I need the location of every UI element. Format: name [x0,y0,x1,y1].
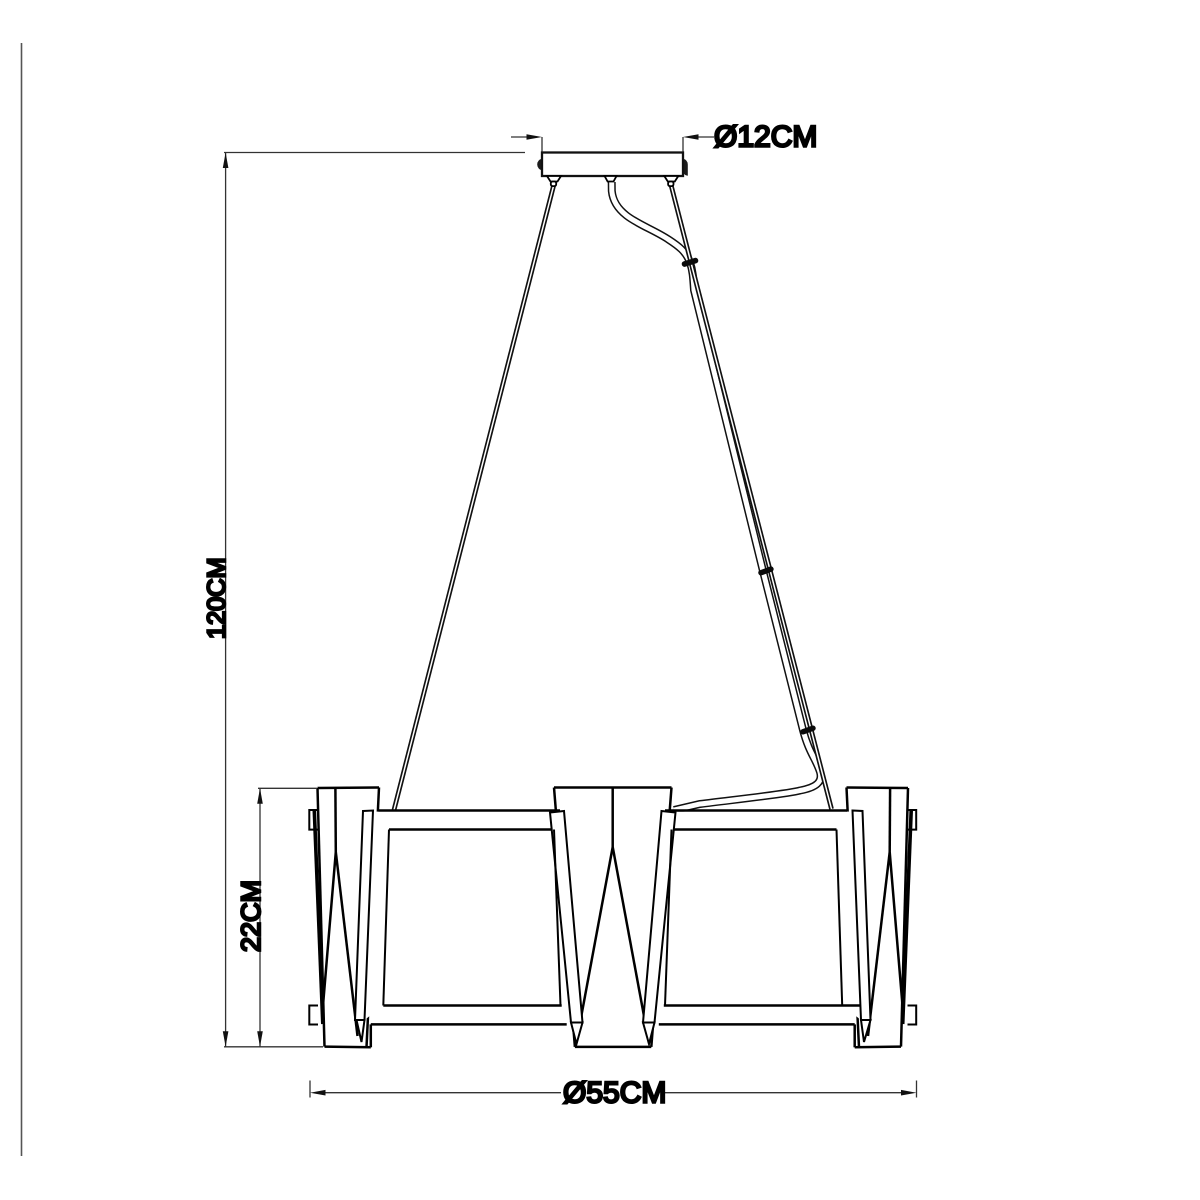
svg-text:Ø12CM: Ø12CM [714,121,817,154]
svg-text:120CM: 120CM [203,557,231,639]
svg-text:22CM: 22CM [236,880,266,952]
svg-text:Ø55CM: Ø55CM [563,1077,666,1110]
